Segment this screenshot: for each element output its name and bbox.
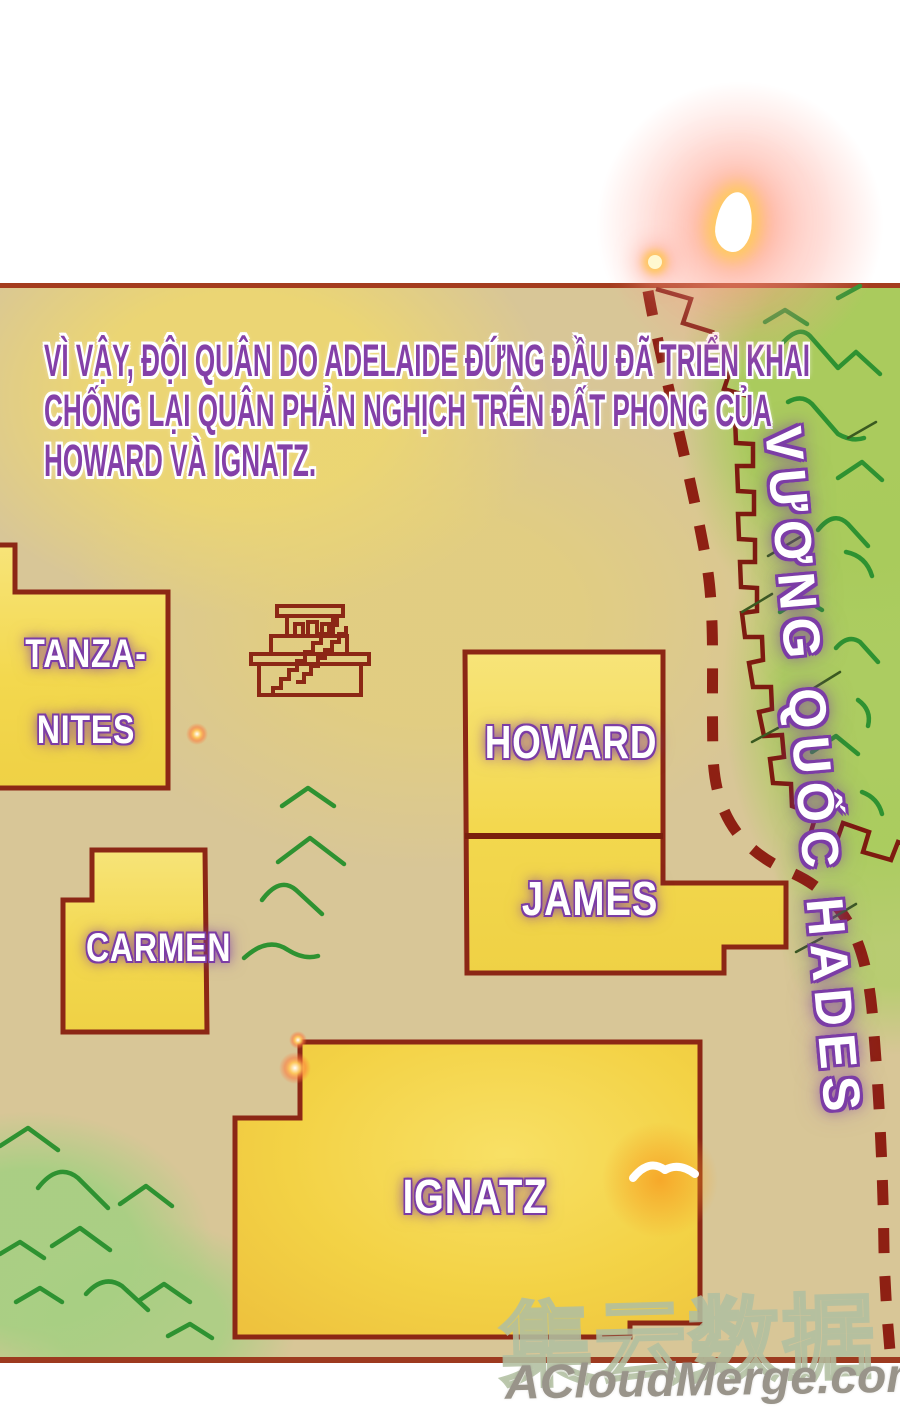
- territory-label-tanzanites: TANZA- NITES: [17, 616, 155, 768]
- narration-line: HOWARD VÀ IGNATZ.: [44, 436, 810, 486]
- watermark-site-text: ACloudMerge.com: [505, 1348, 900, 1410]
- territory-label-line: TANZA-: [17, 616, 155, 692]
- territory-label-ignatz: IGNATZ: [387, 1170, 563, 1225]
- narration-line: CHỐNG LẠI QUÂN PHẢN NGHỊCH TRÊN ĐẤT PHON…: [44, 386, 810, 436]
- territory-label-carmen: CARMEN: [86, 926, 214, 971]
- ziggurat-temple-icon: [251, 606, 369, 695]
- bird-icon: [602, 1122, 718, 1238]
- territory-label-line: NITES: [17, 692, 155, 768]
- light-spark-icon: [648, 255, 662, 269]
- territory-label-james: JAMES: [510, 872, 670, 927]
- territory-label-howard: HOWARD: [485, 715, 643, 769]
- comic-page: VÌ VẬY, ĐỘI QUÂN DO ADELAIDE ĐỨNG ĐẦU ĐÃ…: [0, 0, 900, 1425]
